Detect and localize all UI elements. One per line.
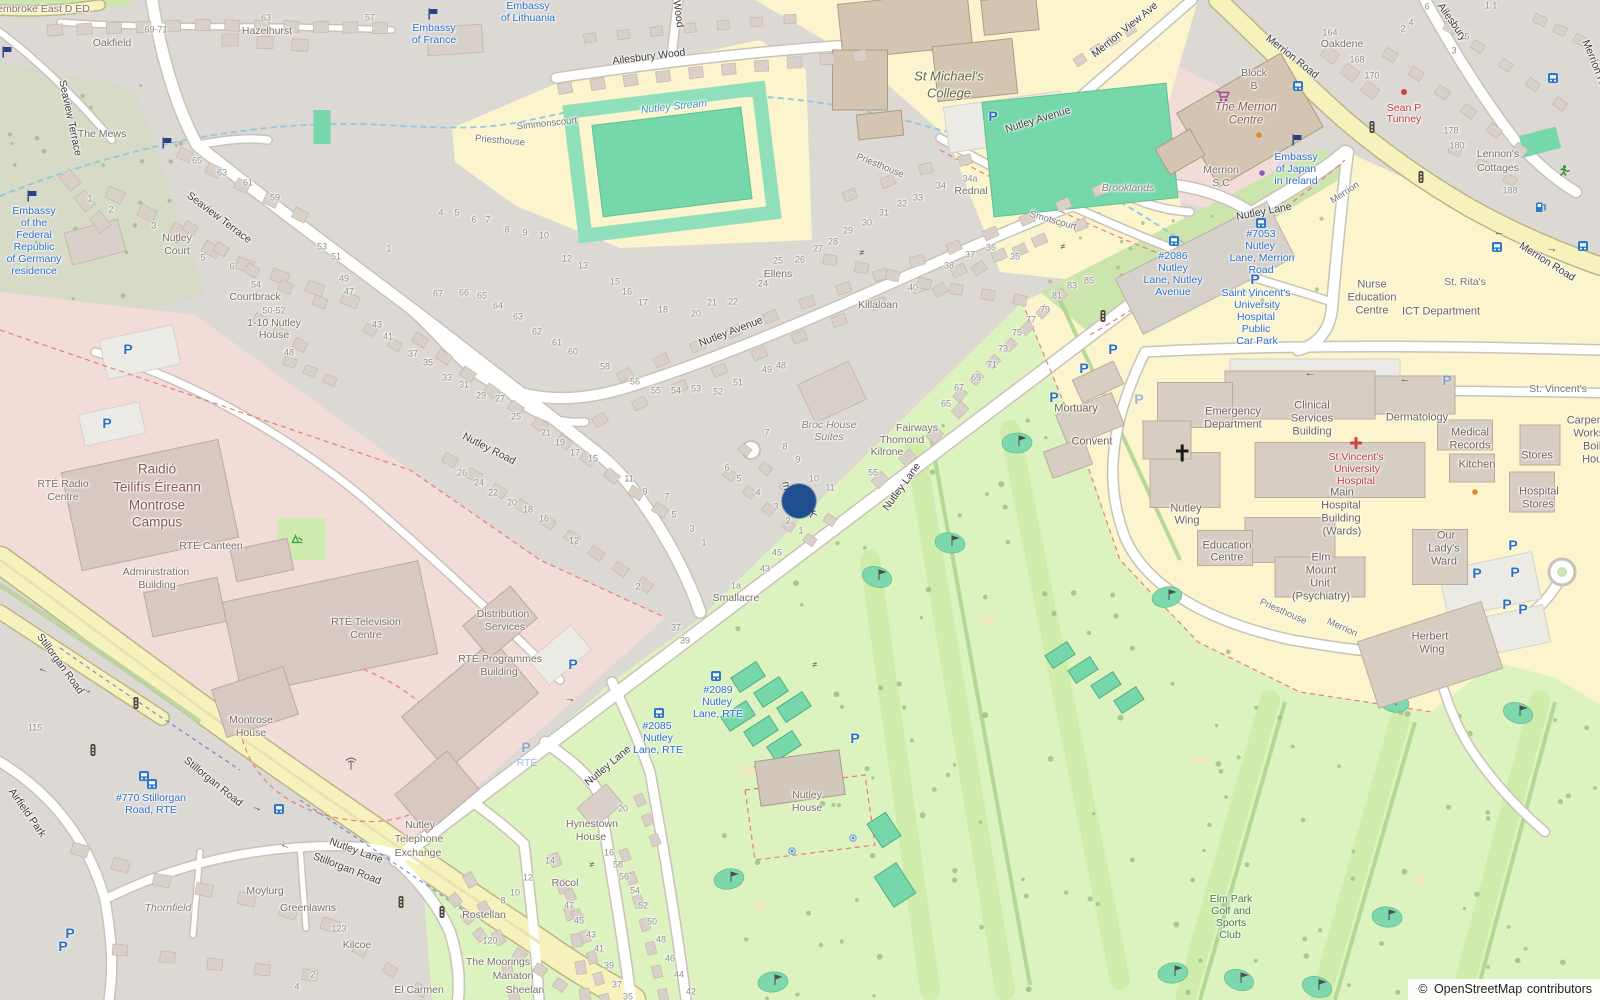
attribution: © OpenStreetMap contributors [1408, 979, 1600, 1000]
location-marker[interactable] [782, 484, 816, 518]
openstreetmap-link[interactable]: OpenStreetMap [1434, 982, 1522, 996]
map-canvas[interactable]: Seaview TerraceSeaview TerraceAilesbury … [0, 0, 1600, 1000]
attribution-suffix: contributors [1527, 982, 1592, 996]
attribution-copyright: © [1418, 982, 1427, 996]
